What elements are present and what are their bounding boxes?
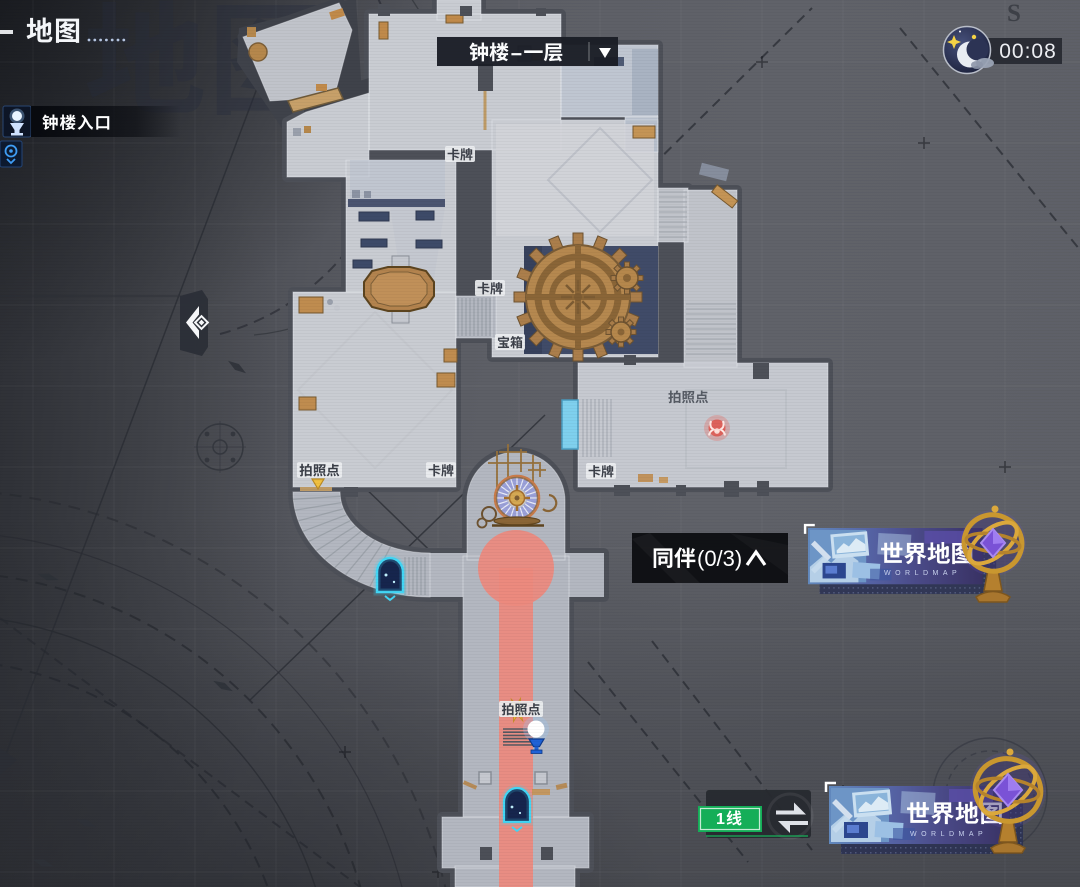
- svg-text:WORLDMAP: WORLDMAP: [910, 831, 987, 838]
- svg-text:00:08: 00:08: [999, 40, 1057, 63]
- svg-text:(0/3): (0/3): [697, 546, 742, 571]
- svg-text:S: S: [1007, 0, 1021, 27]
- svg-text:WORLDMAP: WORLDMAP: [884, 570, 961, 577]
- svg-text:1: 1: [716, 811, 725, 828]
